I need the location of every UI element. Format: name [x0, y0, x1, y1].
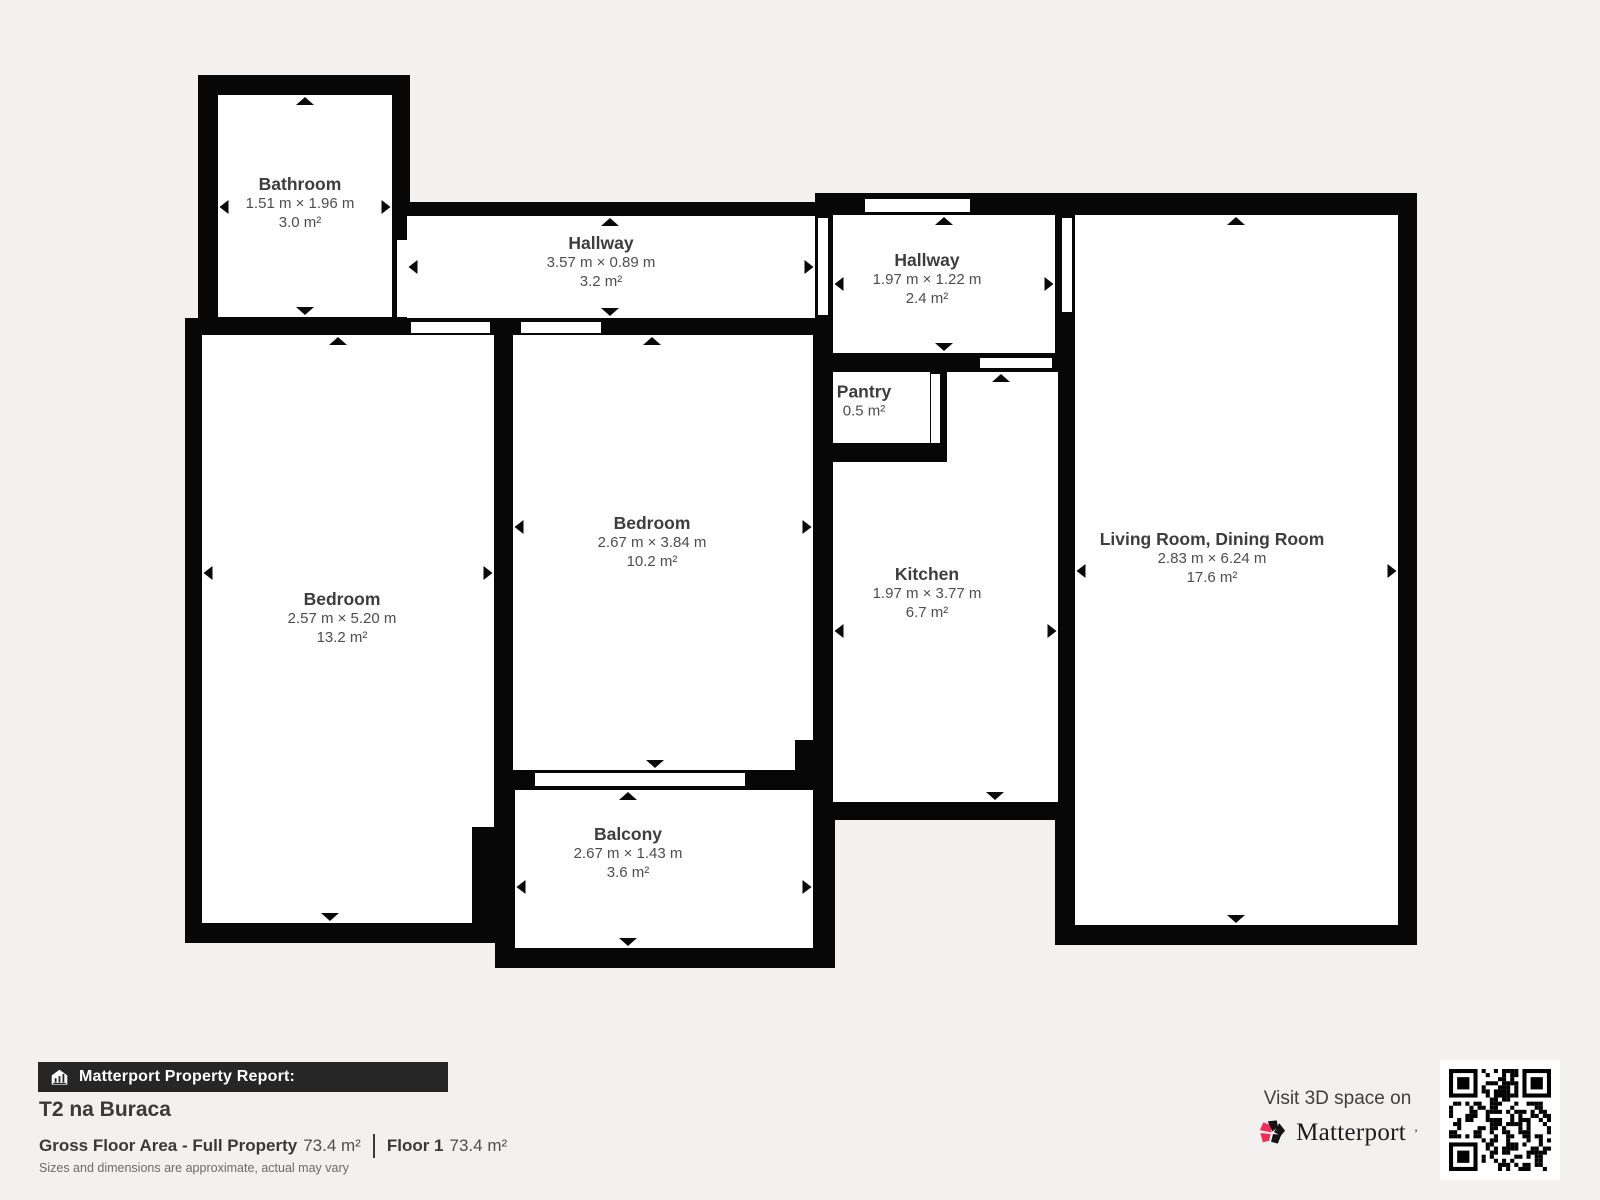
dimension-arrow-right: [1388, 564, 1397, 578]
dimension-arrow-up: [619, 792, 637, 800]
room-label-hallway-top: Hallway 3.57 m × 0.89 m 3.2 m²: [547, 233, 656, 291]
room-area: 10.2 m²: [598, 552, 707, 571]
dimension-arrow-right: [1048, 624, 1057, 638]
door-opening: [411, 322, 490, 333]
room-area: 3.2 m²: [547, 272, 656, 291]
room-name: Bedroom: [288, 589, 397, 609]
room-area: 0.5 m²: [837, 402, 891, 421]
room-area: 3.6 m²: [574, 863, 683, 882]
dimension-arrow-left: [835, 277, 844, 291]
property-name: T2 na Buraca: [39, 1098, 171, 1122]
room-label-bedroom-left: Bedroom 2.57 m × 5.20 m 13.2 m²: [288, 589, 397, 647]
door-opening: [397, 240, 407, 317]
dimension-arrow-right: [1045, 277, 1054, 291]
dimension-arrow-left: [204, 566, 213, 580]
matterport-promo: Visit 3D space on Matterport’: [1257, 1088, 1418, 1148]
room-name: Hallway: [547, 233, 656, 253]
door-opening: [931, 374, 940, 443]
dimension-arrow-up: [296, 97, 314, 105]
dimension-arrow-left: [517, 880, 526, 894]
door-opening: [1062, 218, 1072, 312]
gross-floor-area-value: 73.4 m²: [303, 1136, 361, 1156]
matterport-wordmark: Matterport: [1296, 1119, 1406, 1147]
dimension-arrow-down: [619, 938, 637, 946]
gross-floor-area-label: Gross Floor Area - Full Property: [39, 1136, 297, 1156]
dimension-arrow-left: [835, 624, 844, 638]
dimension-arrow-up: [992, 374, 1010, 382]
room-area: 13.2 m²: [288, 628, 397, 647]
door-opening: [535, 773, 745, 786]
room-label-kitchen: Kitchen 1.97 m × 3.77 m 6.7 m²: [873, 564, 982, 622]
area-stats: Gross Floor Area - Full Property 73.4 m²…: [39, 1134, 507, 1158]
report-bar: Matterport Property Report:: [38, 1062, 448, 1092]
door-opening: [521, 322, 601, 333]
dimension-arrow-down: [296, 307, 314, 315]
room-name: Hallway: [873, 250, 982, 270]
dimension-arrow-up: [329, 337, 347, 345]
room-name: Bathroom: [246, 174, 355, 194]
matterport-logo-icon: [1257, 1117, 1288, 1148]
qr-code: [1440, 1060, 1560, 1180]
room-name: Kitchen: [873, 564, 982, 584]
room-dimensions: 2.57 m × 5.20 m: [288, 609, 397, 628]
room-name: Living Room, Dining Room: [1100, 529, 1325, 549]
room-area: 17.6 m²: [1100, 568, 1325, 587]
room-label-living-room: Living Room, Dining Room 2.83 m × 6.24 m…: [1100, 529, 1325, 587]
dimension-arrow-right: [803, 520, 812, 534]
trademark-mark: ’: [1414, 1128, 1418, 1138]
dimension-arrow-down: [935, 343, 953, 351]
disclaimer-text: Sizes and dimensions are approximate, ac…: [39, 1161, 349, 1175]
room-area: 2.4 m²: [873, 289, 982, 308]
dimension-arrow-up: [935, 217, 953, 225]
room-name: Balcony: [574, 824, 683, 844]
dimension-arrow-down: [321, 913, 339, 921]
dimension-arrow-right: [382, 200, 391, 214]
visit-3d-space-text: Visit 3D space on: [1264, 1088, 1412, 1110]
wall-segment: [833, 443, 947, 462]
dimension-arrow-left: [409, 260, 418, 274]
dimension-arrow-right: [805, 260, 814, 274]
room-dimensions: 3.57 m × 0.89 m: [547, 253, 656, 272]
room-label-bedroom-middle: Bedroom 2.67 m × 3.84 m 10.2 m²: [598, 513, 707, 571]
report-bar-label: Matterport Property Report:: [79, 1068, 295, 1086]
qr-code-pattern: [1449, 1069, 1551, 1171]
dimension-arrow-right: [803, 880, 812, 894]
door-opening: [818, 218, 828, 315]
floor-label: Floor 1: [387, 1136, 444, 1156]
dimension-arrow-up: [601, 218, 619, 226]
dimension-arrow-up: [643, 337, 661, 345]
room-dimensions: 2.67 m × 3.84 m: [598, 533, 707, 552]
room-dimensions: 1.97 m × 1.22 m: [873, 270, 982, 289]
room-area: 6.7 m²: [873, 603, 982, 622]
dimension-arrow-left: [220, 200, 229, 214]
room-dimensions: 1.97 m × 3.77 m: [873, 584, 982, 603]
room-area: 3.0 m²: [246, 213, 355, 232]
room-label-hallway-entry: Hallway 1.97 m × 1.22 m 2.4 m²: [873, 250, 982, 308]
room-label-bathroom: Bathroom 1.51 m × 1.96 m 3.0 m²: [246, 174, 355, 232]
dimension-arrow-down: [986, 792, 1004, 800]
floor-value: 73.4 m²: [450, 1136, 508, 1156]
matterport-brand: Matterport’: [1257, 1117, 1418, 1148]
dimension-arrow-down: [646, 760, 664, 768]
door-opening: [980, 358, 1052, 368]
wall-segment: [795, 740, 833, 790]
dimension-arrow-left: [515, 520, 524, 534]
dimension-arrow-down: [1227, 915, 1245, 923]
room-label-pantry: Pantry 0.5 m²: [837, 382, 891, 421]
room-dimensions: 2.67 m × 1.43 m: [574, 844, 683, 863]
room-dimensions: 2.83 m × 6.24 m: [1100, 549, 1325, 568]
door-opening: [865, 199, 970, 212]
dimension-arrow-up: [1227, 217, 1245, 225]
building-icon: [51, 1069, 68, 1086]
dimension-arrow-right: [484, 566, 493, 580]
room-name: Pantry: [837, 382, 891, 402]
floor-plan-page: Bathroom 1.51 m × 1.96 m 3.0 m² Hallway …: [0, 0, 1600, 1200]
stat-divider: [373, 1134, 375, 1158]
room-label-balcony: Balcony 2.67 m × 1.43 m 3.6 m²: [574, 824, 683, 882]
room-dimensions: 1.51 m × 1.96 m: [246, 194, 355, 213]
room-name: Bedroom: [598, 513, 707, 533]
dimension-arrow-left: [1077, 564, 1086, 578]
wall-segment: [472, 827, 513, 943]
dimension-arrow-down: [601, 308, 619, 316]
